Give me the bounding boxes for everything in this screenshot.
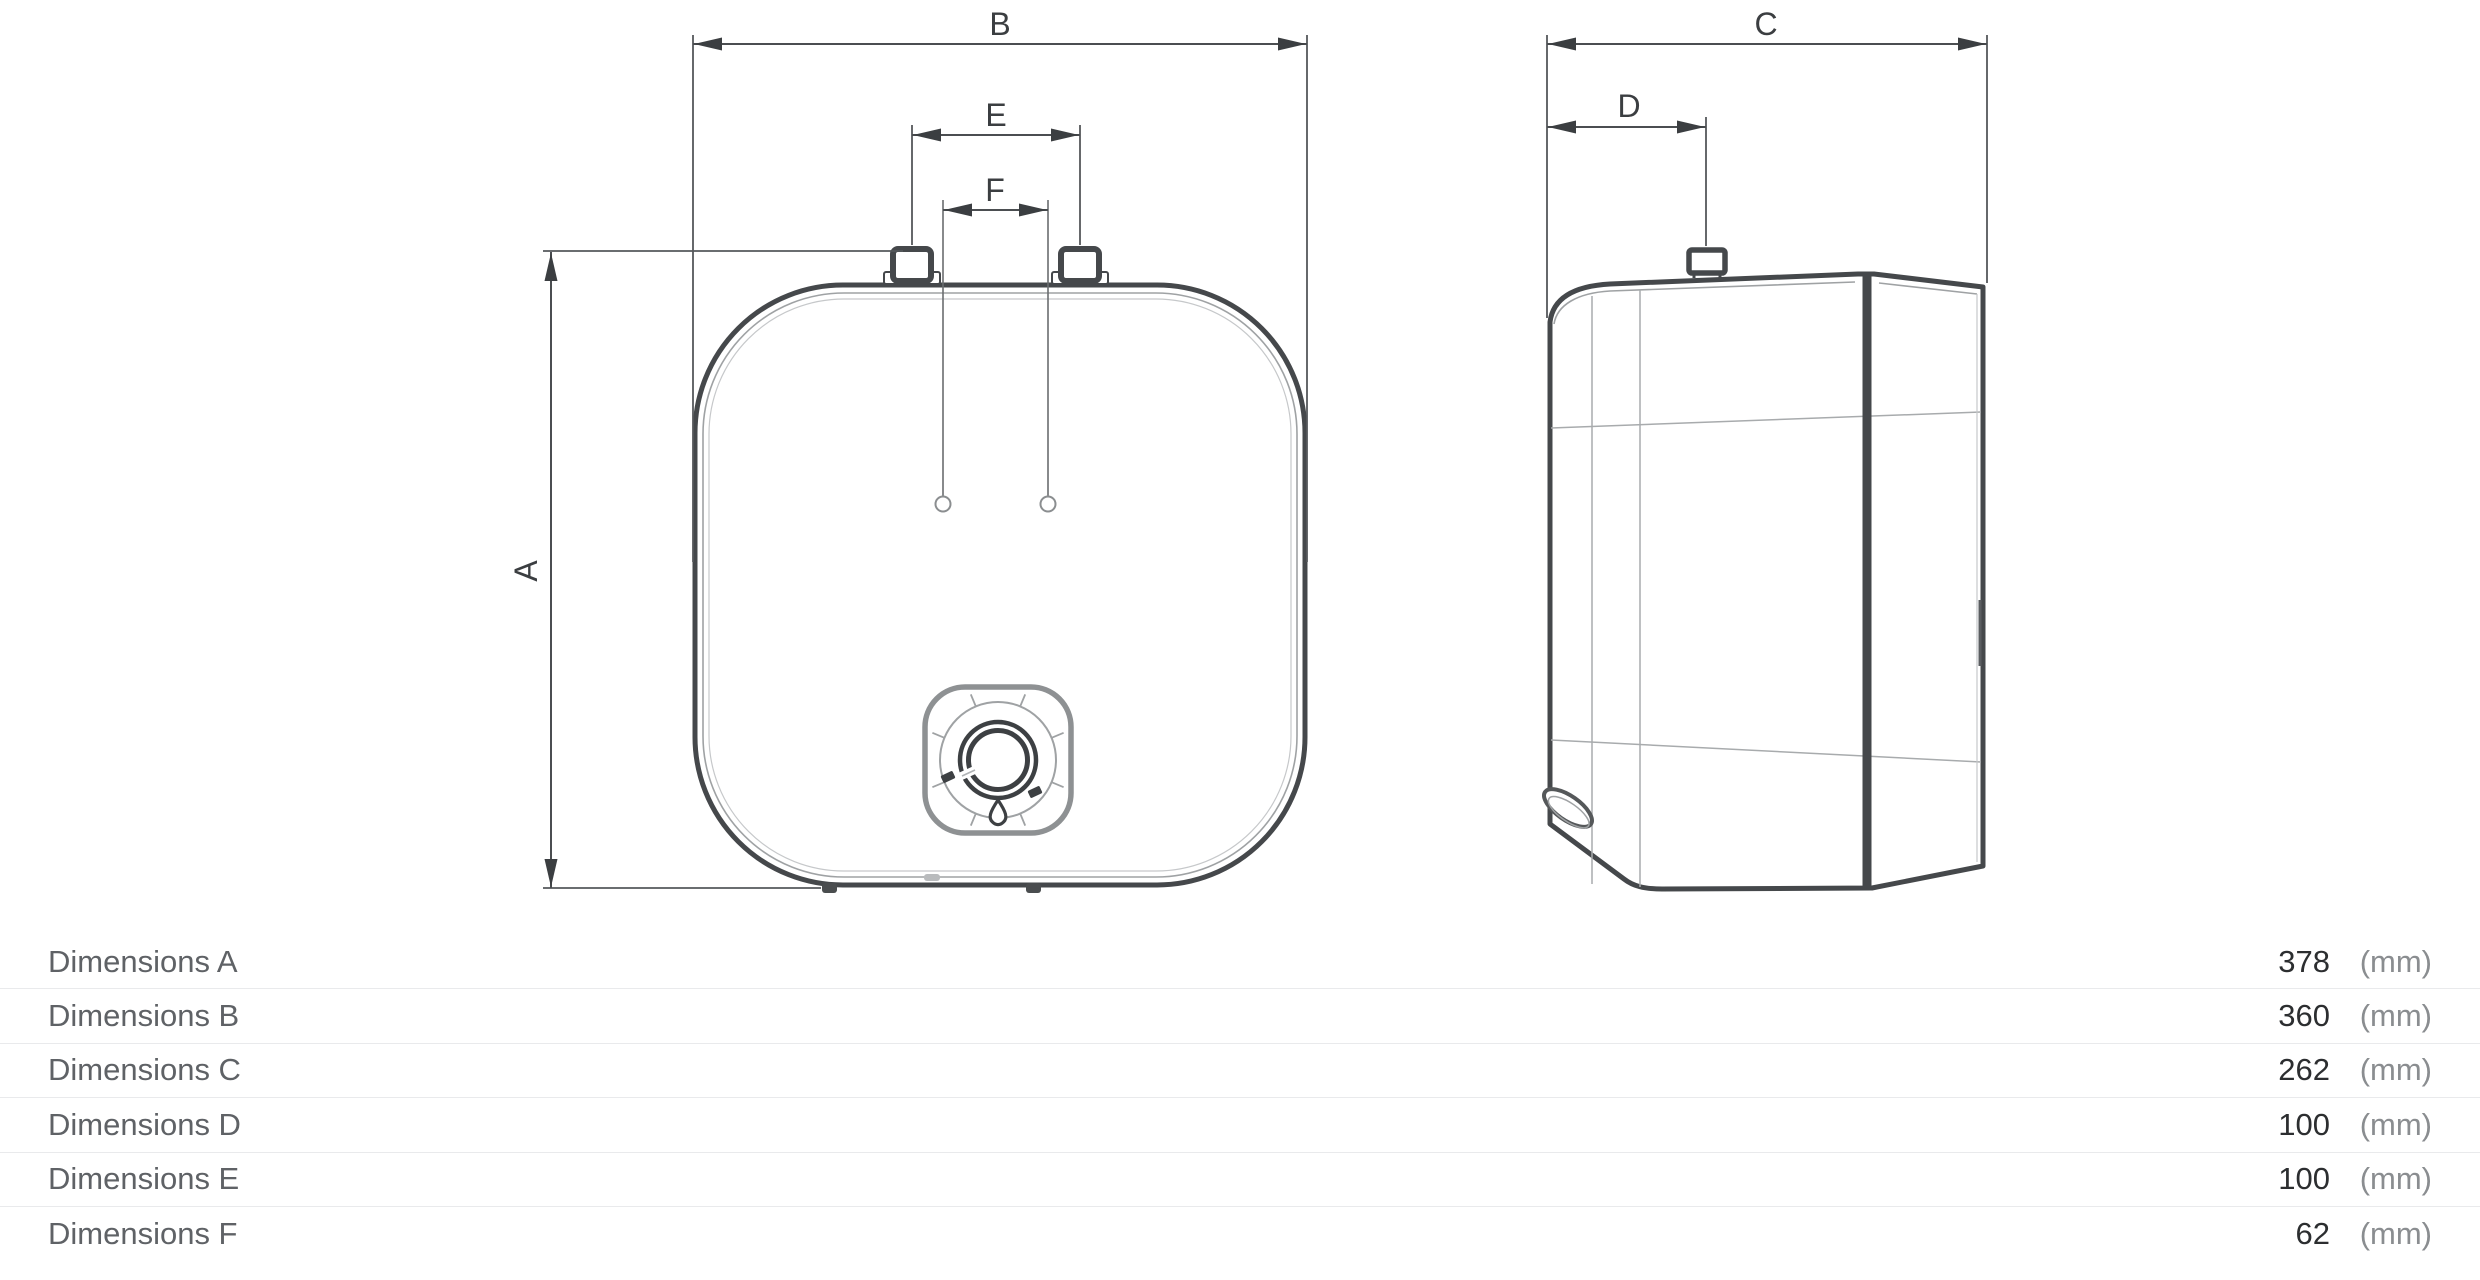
front-view	[695, 200, 1305, 893]
table-row: Dimensions C 262 (mm)	[0, 1043, 2480, 1097]
dimension-E: E	[912, 97, 1080, 245]
arrow-right-icon	[1958, 38, 1986, 51]
row-unit: (mm)	[2330, 1052, 2432, 1088]
right-pipe-stub	[1061, 249, 1099, 281]
front-bottom-tab	[924, 874, 940, 881]
row-value: 378	[2278, 944, 2330, 980]
mounting-hole-right	[1041, 497, 1056, 512]
row-value: 100	[2278, 1161, 2330, 1197]
arrow-up-icon	[545, 253, 558, 281]
front-foot-right	[1026, 883, 1041, 893]
table-row: Dimensions A 378 (mm)	[0, 935, 2480, 988]
row-value: 100	[2278, 1107, 2330, 1143]
dimension-label-B: B	[989, 6, 1010, 42]
mounting-hole-left	[936, 497, 951, 512]
arrow-left-icon	[913, 129, 941, 142]
table-row: Dimensions F 62 (mm)	[0, 1206, 2480, 1260]
row-unit: (mm)	[2330, 1216, 2432, 1252]
arrow-right-icon	[1051, 129, 1079, 142]
dimension-label-D: D	[1617, 88, 1640, 124]
row-label: Dimensions E	[48, 1161, 2278, 1197]
technical-drawing: B E F A	[0, 0, 2480, 935]
row-unit: (mm)	[2330, 1161, 2432, 1197]
arrow-right-icon	[1019, 204, 1047, 217]
row-unit: (mm)	[2330, 1107, 2432, 1143]
dimension-label-E: E	[985, 97, 1006, 133]
arrow-down-icon	[545, 859, 558, 887]
row-unit: (mm)	[2330, 944, 2432, 980]
row-label: Dimensions D	[48, 1107, 2278, 1143]
arrow-left-icon	[1548, 121, 1576, 134]
water-heater-dimension-diagram: B E F A	[0, 0, 2480, 935]
arrow-left-icon	[1548, 38, 1576, 51]
row-value: 262	[2278, 1052, 2330, 1088]
side-view	[1538, 250, 1983, 889]
row-unit: (mm)	[2330, 998, 2432, 1034]
dimension-label-F: F	[985, 172, 1005, 208]
row-label: Dimensions C	[48, 1052, 2278, 1088]
side-pipe-stub	[1689, 250, 1725, 273]
dimension-F: F	[943, 172, 1048, 217]
dimension-label-A: A	[508, 560, 544, 582]
arrow-left-icon	[694, 38, 722, 51]
row-label: Dimensions B	[48, 998, 2278, 1034]
table-row: Dimensions D 100 (mm)	[0, 1097, 2480, 1151]
row-value: 360	[2278, 998, 2330, 1034]
product-dimensions-page: { "drawing": { "labels": { "A": "A", "B"…	[0, 0, 2480, 1280]
dimension-D: D	[1547, 88, 1706, 246]
side-body-outline	[1550, 274, 1983, 889]
dimension-label-C: C	[1754, 6, 1777, 42]
row-value: 62	[2296, 1216, 2330, 1252]
table-row: Dimensions E 100 (mm)	[0, 1152, 2480, 1206]
thermostat-knob	[925, 687, 1071, 833]
row-label: Dimensions F	[48, 1216, 2296, 1252]
arrow-right-icon	[1278, 38, 1306, 51]
left-pipe-stub	[893, 249, 931, 281]
front-foot-left	[822, 883, 837, 893]
arrow-left-icon	[944, 204, 972, 217]
table-row: Dimensions B 360 (mm)	[0, 988, 2480, 1042]
arrow-right-icon	[1677, 121, 1705, 134]
dimension-C: C	[1547, 6, 1987, 318]
row-label: Dimensions A	[48, 944, 2278, 980]
dimensions-table: Dimensions A 378 (mm) Dimensions B 360 (…	[0, 935, 2480, 1260]
